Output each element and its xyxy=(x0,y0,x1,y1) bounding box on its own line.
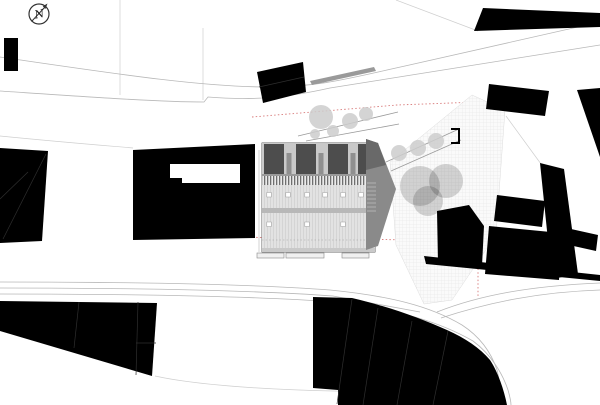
canopies xyxy=(257,253,369,258)
site-plan-svg: N xyxy=(0,0,600,405)
main-building xyxy=(257,139,396,258)
building-left-mass xyxy=(0,148,48,243)
ribbed-roof-band xyxy=(262,176,375,185)
roof-lower xyxy=(262,213,375,248)
site-plan: N xyxy=(0,0,600,405)
courtyard-notch xyxy=(170,164,240,183)
roof-upper xyxy=(262,185,375,208)
building-top-left xyxy=(4,38,18,71)
building-middle-mass xyxy=(133,144,255,240)
